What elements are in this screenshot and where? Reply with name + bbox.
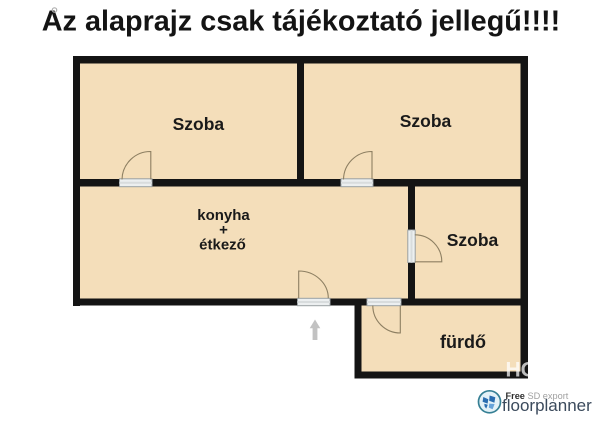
svg-text:fürdő: fürdő: [440, 332, 486, 352]
svg-text:étkező: étkező: [199, 237, 246, 254]
svg-text:Szoba: Szoba: [173, 114, 225, 134]
svg-text:Szoba: Szoba: [447, 230, 499, 250]
svg-text:Az alaprajz csak tájékoztató j: Az alaprajz csak tájékoztató jellegű!!!!: [42, 6, 561, 38]
svg-text:HO: HO: [506, 359, 538, 382]
svg-text:floorplanner: floorplanner: [502, 396, 592, 415]
svg-text:Szoba: Szoba: [400, 111, 452, 131]
